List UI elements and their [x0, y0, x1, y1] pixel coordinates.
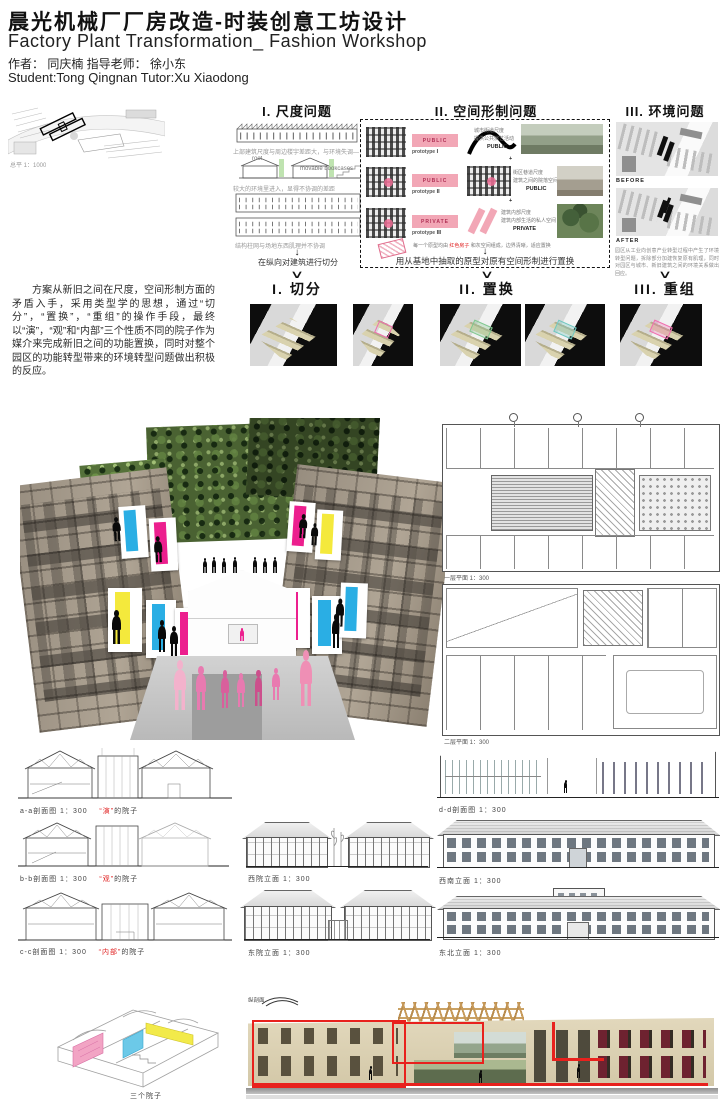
stamp-caption: 每一个原型均由 红色房子 和灰空间组成，边界清晰，适应置换: [413, 243, 599, 251]
court-elevation-east-label: 东院立面 1：300: [248, 948, 311, 958]
axon-thumb-regroup: [620, 304, 702, 366]
prototype-sub-2: prototype Ⅱ: [412, 189, 440, 195]
alley-map-diagram: [467, 166, 511, 196]
after-label: AFTER: [616, 238, 639, 244]
pink-figure: [298, 650, 314, 706]
student-line: Student:Tong Qingnan Tutor:Xu Xiaodong: [8, 70, 249, 85]
section-c-red: “内部”: [99, 949, 122, 956]
red-cut-vertical: [552, 1022, 555, 1060]
long-section-d: [437, 744, 719, 802]
section-b-drawing: [16, 818, 231, 872]
site-plan-label: 总平 1：1000: [10, 160, 46, 169]
env-map-before: [616, 122, 718, 176]
center-right-bays: [534, 1030, 590, 1082]
strategy-cut: I. 切分: [250, 279, 344, 299]
first-floor-label: 一层平面 1：300: [444, 573, 489, 582]
ground-reflection: [246, 1095, 718, 1099]
problem-scale-title: I. 尺度问题: [238, 101, 356, 120]
long-section-d-label: d-d剖面图 1：300: [439, 805, 507, 815]
pink-figure: [219, 670, 231, 708]
axon-thumb-cut: [250, 304, 337, 366]
section-c-text: c-c剖面图 1：300: [20, 949, 87, 956]
note-1-line2: 提供公共演艺活动: [474, 136, 514, 144]
note-2-line2: 建筑之间的院落空间: [513, 178, 558, 186]
pink-figure: [271, 668, 281, 700]
pink-figure: [194, 666, 208, 710]
prototype-badge-3: PRIVATE: [412, 215, 458, 228]
env-map-after: [616, 188, 718, 236]
section-c-suffix: 的院子: [121, 949, 145, 956]
axon-thumb-replace-2: [440, 304, 521, 366]
long-elevation-sw: [437, 818, 719, 874]
plus-icon-1: +: [509, 156, 512, 162]
context-photo-3: [557, 204, 603, 238]
figure-ground-map-3: [366, 208, 406, 238]
tree-lines: [328, 820, 346, 866]
red-cut-outline-left: [252, 1020, 406, 1088]
scale-diagram-plans: [234, 192, 362, 240]
tiny-figure: [478, 1070, 483, 1083]
cut-caption: 在纵向对建筑进行切分: [233, 257, 363, 268]
section-b-red: “观”: [99, 876, 114, 883]
pink-figure: [172, 660, 188, 710]
bookcase-annotation: movable bookcases: [300, 166, 353, 172]
stamp-caption-pre: 每一个原型均由: [413, 243, 449, 249]
roof-annotation: roof: [252, 156, 262, 162]
rendered-long-section: 纵剖面: [246, 994, 718, 1104]
plus-icon-2: +: [509, 198, 512, 204]
scale-diagram-shed: [233, 120, 361, 146]
prototype-sub-3: prototype Ⅲ: [412, 230, 441, 236]
crimson-windows-lower: [598, 1056, 706, 1078]
court-elevation-west-label: 西院立面 1：300: [248, 874, 311, 884]
context-photo-2: [557, 166, 603, 196]
long-elevation-sw-label: 西南立面 1：300: [439, 876, 502, 886]
page-subtitle: Factory Plant Transformation_ Fashion Wo…: [8, 31, 427, 52]
site-plan-drawing: [8, 106, 165, 160]
court-elevation-west: [246, 820, 428, 872]
axon-thumb-replace-3: [525, 304, 605, 366]
replace-caption: 用从基地中抽取的原型对原有空间形制进行置换: [361, 255, 609, 267]
banner-panel: [149, 517, 179, 571]
figure-ground-map-2: [366, 167, 406, 197]
axon-thumb-replace-1: [353, 304, 413, 366]
section-a-text: a-a剖面图 1：300: [20, 808, 88, 815]
section-a-suffix: 的院子: [114, 808, 138, 815]
strategy-regroup: III. 重组: [613, 279, 717, 299]
section-b-text: b-b剖面图 1：300: [20, 876, 88, 883]
courtyards-axon: [28, 985, 233, 1090]
section-a-red: “演”: [99, 808, 114, 815]
problem-env-title: III. 环境问题: [612, 101, 718, 120]
ground-strip: [246, 1088, 718, 1094]
note-3-tag: PRIVATE: [513, 226, 536, 232]
intro-paragraph: 方案从新旧之间在尺度，空间形制方面的矛盾入手，采用类型学的思想，通过“切分”，“…: [12, 284, 215, 376]
prototype-badge-1: PUBLIC: [412, 134, 458, 147]
presentation-board: 晨光机械厂厂房改造-时装创意工坊设计 Factory Plant Transfo…: [0, 0, 720, 1110]
long-elevation-ne-label: 东北立面 1：300: [439, 948, 502, 958]
note-3-line2: 建筑内部生活的私人空间: [501, 218, 556, 226]
figure-ground-map-1: [366, 127, 406, 157]
context-photo-1: [521, 124, 603, 154]
section-b-label: b-b剖面图 1：300 “观”的院子: [20, 874, 138, 884]
sketch-swoosh: [260, 994, 300, 1008]
strategy-replace: II. 置换: [437, 279, 537, 299]
tiny-figure: [576, 1064, 581, 1078]
stamp-caption-red: 红色房子: [449, 243, 469, 249]
before-label: BEFORE: [616, 178, 645, 184]
second-floor-plan: [442, 584, 720, 736]
center-window: [228, 624, 258, 644]
pink-figure: [236, 673, 246, 707]
section-c-label: c-c剖面图 1：300 “内部”的院子: [20, 947, 145, 957]
problem-form-title: II. 空间形制问题: [410, 101, 562, 120]
banner-panel: [315, 509, 344, 560]
note-1-line1: 城市街道尺度: [474, 128, 504, 136]
form-analysis-box: PUBLIC prototype Ⅰ 城市街道尺度 提供公共演艺活动 PUBLI…: [360, 119, 610, 268]
axon-caption: 三个院子: [130, 1091, 162, 1101]
first-floor-plan: [442, 424, 720, 572]
red-cut-horizontal: [552, 1058, 604, 1061]
section-b-suffix: 的院子: [114, 876, 138, 883]
court-elevation-east: [244, 888, 430, 946]
prototype-badge-2: PUBLIC: [412, 174, 458, 187]
crimson-windows-upper: [598, 1030, 706, 1048]
note-2-line1: 街区巷道尺度: [513, 170, 543, 178]
banner-panel: [339, 583, 368, 639]
long-elevation-ne: [437, 888, 719, 946]
red-baseline: [252, 1083, 708, 1086]
main-perspective-collage: [20, 418, 445, 740]
banner-panel: [108, 588, 142, 652]
pink-figure: [253, 670, 264, 706]
section-c-drawing: [16, 888, 234, 946]
note-2-tag: PUBLIC: [526, 186, 546, 192]
section-a-label: a-a剖面图 1：300 “演”的院子: [20, 806, 138, 816]
section-a-drawing: [16, 744, 234, 804]
note-3-line1: 建筑内部尺度: [501, 210, 531, 218]
prototype-sub-1: prototype Ⅰ: [412, 149, 438, 155]
note-1-tag: PUBLIC: [487, 144, 507, 150]
banner-panel: [118, 505, 149, 559]
red-cut-outline-mid: [392, 1022, 484, 1064]
